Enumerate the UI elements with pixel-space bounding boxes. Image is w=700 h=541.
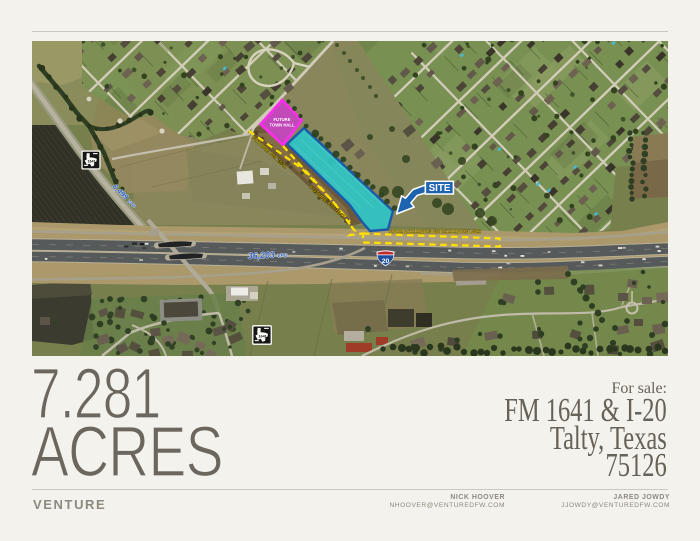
svg-text:20: 20 [382, 258, 390, 265]
svg-text:1641: 1641 [258, 334, 266, 338]
svg-text:FUTURE: FUTURE [274, 117, 291, 122]
svg-text:TOWN HALL: TOWN HALL [269, 123, 294, 128]
svg-text:SITE: SITE [429, 183, 451, 194]
svg-text:1641: 1641 [87, 159, 95, 163]
svg-text:FUTURE ACCELERATION AND DECELE: FUTURE ACCELERATION AND DECELERATION LAN… [389, 230, 481, 236]
